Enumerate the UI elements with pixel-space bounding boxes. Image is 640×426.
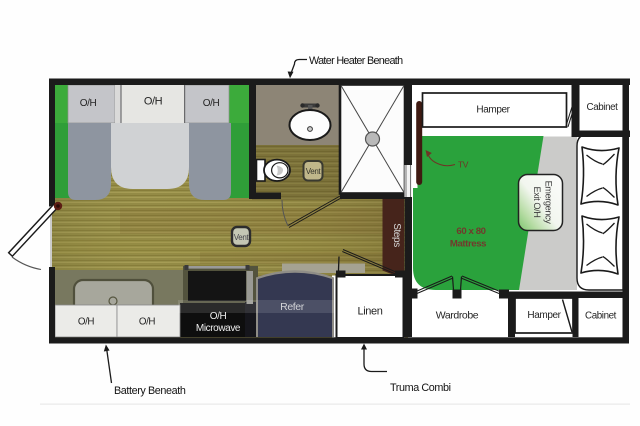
svg-text:O/H: O/H xyxy=(144,96,163,108)
svg-text:Water Heater Beneath: Water Heater Beneath xyxy=(309,55,403,67)
svg-text:Battery Beneath: Battery Beneath xyxy=(114,385,186,397)
svg-text:O/H: O/H xyxy=(78,317,95,328)
svg-text:Hamper: Hamper xyxy=(527,310,561,321)
svg-text:Mattress: Mattress xyxy=(450,239,486,250)
svg-text:Steps: Steps xyxy=(391,223,402,247)
svg-text:O/H: O/H xyxy=(203,98,220,109)
svg-text:Vent: Vent xyxy=(234,233,250,242)
svg-text:60 x 80: 60 x 80 xyxy=(456,226,485,237)
svg-text:Wardrobe: Wardrobe xyxy=(436,310,479,322)
svg-text:TV: TV xyxy=(458,160,469,170)
svg-text:Truma Combi: Truma Combi xyxy=(390,382,451,394)
svg-text:Vent: Vent xyxy=(306,167,322,176)
svg-text:Cabinet: Cabinet xyxy=(585,311,617,322)
svg-text:O/H: O/H xyxy=(139,317,156,328)
svg-text:Emergency: Emergency xyxy=(544,181,554,225)
svg-text:Cabinet: Cabinet xyxy=(587,102,619,113)
svg-text:O/H: O/H xyxy=(80,98,97,109)
svg-text:Hamper: Hamper xyxy=(476,105,510,116)
svg-text:Exit O/H: Exit O/H xyxy=(532,186,542,217)
svg-text:Microwave: Microwave xyxy=(196,323,241,334)
svg-text:Linen: Linen xyxy=(358,306,383,318)
